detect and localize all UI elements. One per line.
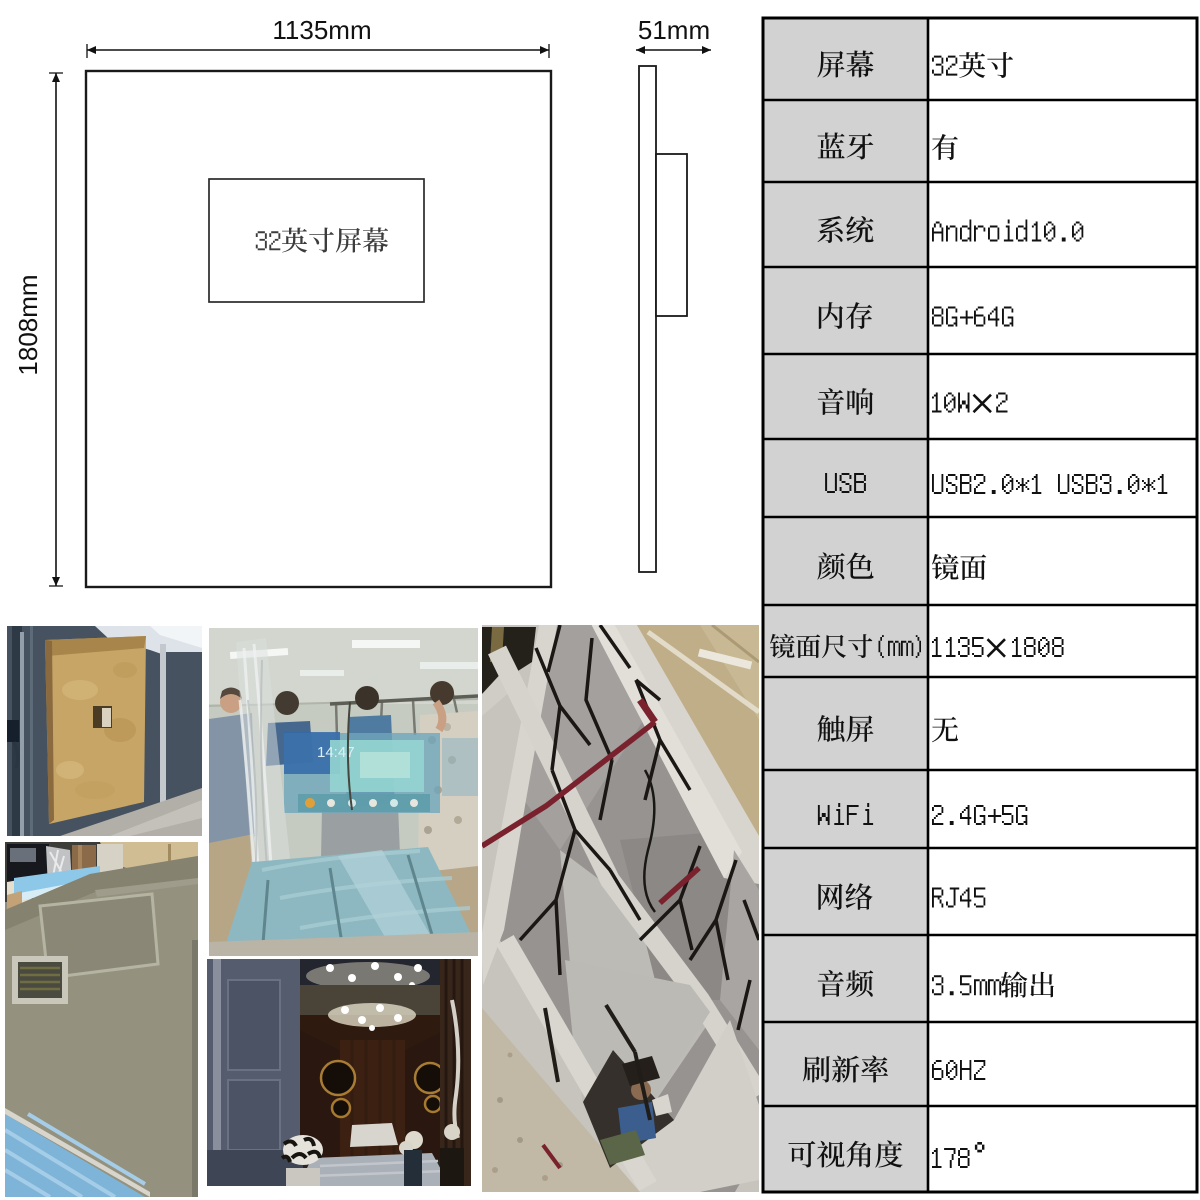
svg-text:1808mm: 1808mm <box>13 274 43 375</box>
svg-text:51mm: 51mm <box>638 15 710 45</box>
svg-text:1135mm: 1135mm <box>272 15 371 45</box>
